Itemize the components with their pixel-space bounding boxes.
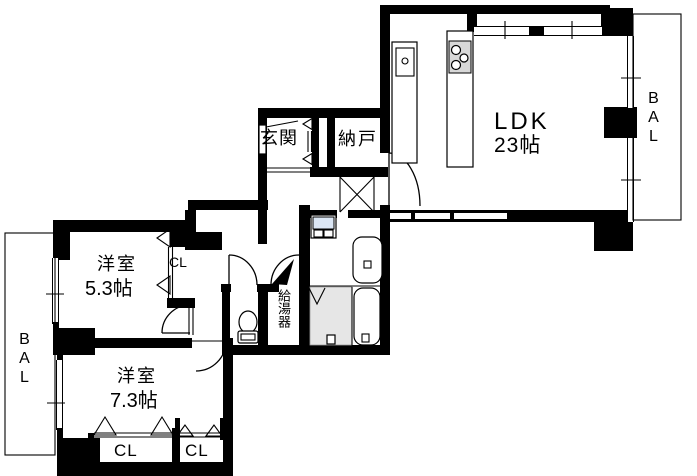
entrance-door-swing	[266, 121, 298, 127]
plan-symbols	[0, 0, 697, 476]
x-opening-icon	[340, 177, 374, 212]
door-arc	[196, 341, 226, 371]
balcony-label-left: BAL	[16, 331, 32, 388]
room-label-bedroom-53: 洋室	[97, 255, 137, 273]
balcony-label-right: BAL	[645, 90, 661, 147]
door-arc	[162, 305, 190, 333]
room-label-ldk: LDK	[494, 110, 550, 134]
floor-plan: LDK 23帖 BAL BAL 玄関 納戸 洋室 5.3帖 洋室 7.3帖 CL…	[0, 0, 697, 476]
toilet-icon	[238, 311, 258, 343]
room-size-ldk: 23帖	[494, 135, 541, 156]
folding-door-icon	[303, 119, 312, 165]
room-label-water-heater: 給湯器	[277, 289, 290, 328]
closet-label-53: CL	[169, 255, 187, 269]
closet-label-73-right: CL	[185, 442, 209, 459]
bathtub-icon	[354, 288, 380, 345]
washbasin-icon	[353, 237, 382, 283]
door-arc	[229, 255, 257, 285]
entrance-step-line	[266, 168, 310, 172]
room-label-entrance: 玄関	[260, 129, 298, 147]
room-label-bedroom-73: 洋室	[117, 367, 157, 385]
washing-machine-pan-icon	[311, 215, 336, 238]
kitchen-counter-icon	[447, 31, 473, 167]
refrigerator-icon	[392, 42, 417, 163]
door-frame	[189, 303, 193, 335]
door-leaf	[272, 259, 294, 285]
room-label-storage: 納戸	[338, 130, 378, 148]
closet-label-73-left: CL	[114, 442, 138, 459]
folding-door-icon	[94, 417, 222, 437]
room-size-bedroom-73: 7.3帖	[110, 391, 158, 411]
bathroom	[309, 286, 380, 346]
room-size-bedroom-53: 5.3帖	[85, 279, 133, 299]
